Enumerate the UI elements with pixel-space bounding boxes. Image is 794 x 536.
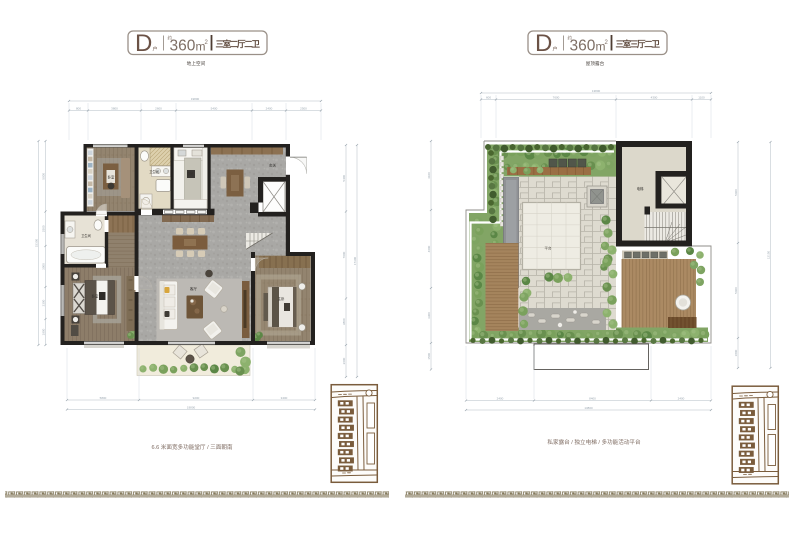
svg-text:19800: 19800 — [191, 97, 200, 101]
svg-text:7000: 7000 — [342, 251, 346, 258]
svg-text:3800: 3800 — [111, 107, 118, 111]
svg-text:2400: 2400 — [678, 397, 685, 401]
svg-text:3800: 3800 — [342, 318, 346, 325]
svg-text:卧室: 卧室 — [108, 175, 115, 180]
svg-text:2500: 2500 — [300, 107, 307, 111]
svg-text:800: 800 — [76, 107, 81, 111]
svg-text:5800: 5800 — [100, 396, 107, 400]
svg-text:9200: 9200 — [193, 396, 200, 400]
svg-text:电梯: 电梯 — [637, 186, 644, 191]
svg-text:地上空间: 地上空间 — [187, 60, 206, 67]
svg-text:三室二厅二卫: 三室二厅二卫 — [216, 38, 261, 49]
svg-text:5400: 5400 — [211, 107, 218, 111]
svg-text:平台: 平台 — [544, 246, 552, 251]
svg-text:厨房: 厨房 — [187, 171, 193, 176]
svg-text:13800: 13800 — [584, 406, 593, 410]
svg-text:卫生间: 卫生间 — [81, 233, 91, 238]
svg-text:3000: 3000 — [41, 263, 45, 270]
svg-text:6.6 米面宽多功能堂厅 / 三面朝南: 6.6 米面宽多功能堂厅 / 三面朝南 — [151, 443, 233, 451]
svg-text:户: 户 — [553, 46, 558, 53]
svg-text:户: 户 — [153, 46, 158, 53]
svg-text:1500: 1500 — [427, 353, 431, 360]
svg-text:3400: 3400 — [281, 396, 288, 400]
svg-text:8400: 8400 — [589, 397, 596, 401]
svg-text:4600: 4600 — [427, 245, 431, 252]
svg-text:17300: 17300 — [353, 256, 357, 265]
svg-text:600: 600 — [486, 96, 491, 100]
svg-text:2400: 2400 — [497, 397, 504, 401]
svg-text:360: 360 — [570, 38, 596, 55]
svg-text:5400: 5400 — [734, 287, 738, 294]
svg-text:2600: 2600 — [342, 357, 346, 364]
svg-text:19800: 19800 — [187, 406, 196, 410]
svg-text:客厅: 客厅 — [190, 286, 198, 291]
svg-text:屋顶露台: 屋顶露台 — [586, 60, 605, 67]
svg-text:4100: 4100 — [427, 172, 431, 179]
svg-text:2600: 2600 — [155, 107, 162, 111]
svg-text:三室三厅二卫: 三室三厅二卫 — [616, 38, 661, 49]
svg-text:D: D — [535, 30, 552, 57]
svg-text:5400: 5400 — [734, 189, 738, 196]
svg-text:4300: 4300 — [651, 96, 658, 100]
svg-text:1800: 1800 — [734, 349, 738, 356]
svg-text:卫生间: 卫生间 — [149, 169, 159, 174]
svg-text:卧室: 卧室 — [92, 294, 99, 299]
svg-text:5400: 5400 — [342, 175, 346, 182]
svg-text:12150: 12150 — [766, 250, 770, 259]
svg-text:13800: 13800 — [592, 89, 601, 93]
svg-text:1100: 1100 — [698, 96, 705, 100]
svg-text:3300: 3300 — [427, 312, 431, 319]
svg-text:2400: 2400 — [266, 107, 273, 111]
svg-text:5000: 5000 — [41, 173, 45, 180]
svg-text:7600: 7600 — [553, 96, 560, 100]
svg-text:私家露台 / 独立电梯 / 多功能活动平台: 私家露台 / 独立电梯 / 多功能活动平台 — [547, 438, 641, 446]
svg-text:1900: 1900 — [41, 328, 45, 335]
svg-text:15300: 15300 — [34, 238, 38, 247]
svg-text:2500: 2500 — [41, 225, 45, 232]
svg-text:玄关: 玄关 — [269, 163, 277, 168]
svg-text:360: 360 — [170, 38, 196, 55]
svg-text:主卧: 主卧 — [278, 296, 285, 301]
svg-text:D: D — [135, 30, 152, 57]
svg-text:2300: 2300 — [41, 299, 45, 306]
